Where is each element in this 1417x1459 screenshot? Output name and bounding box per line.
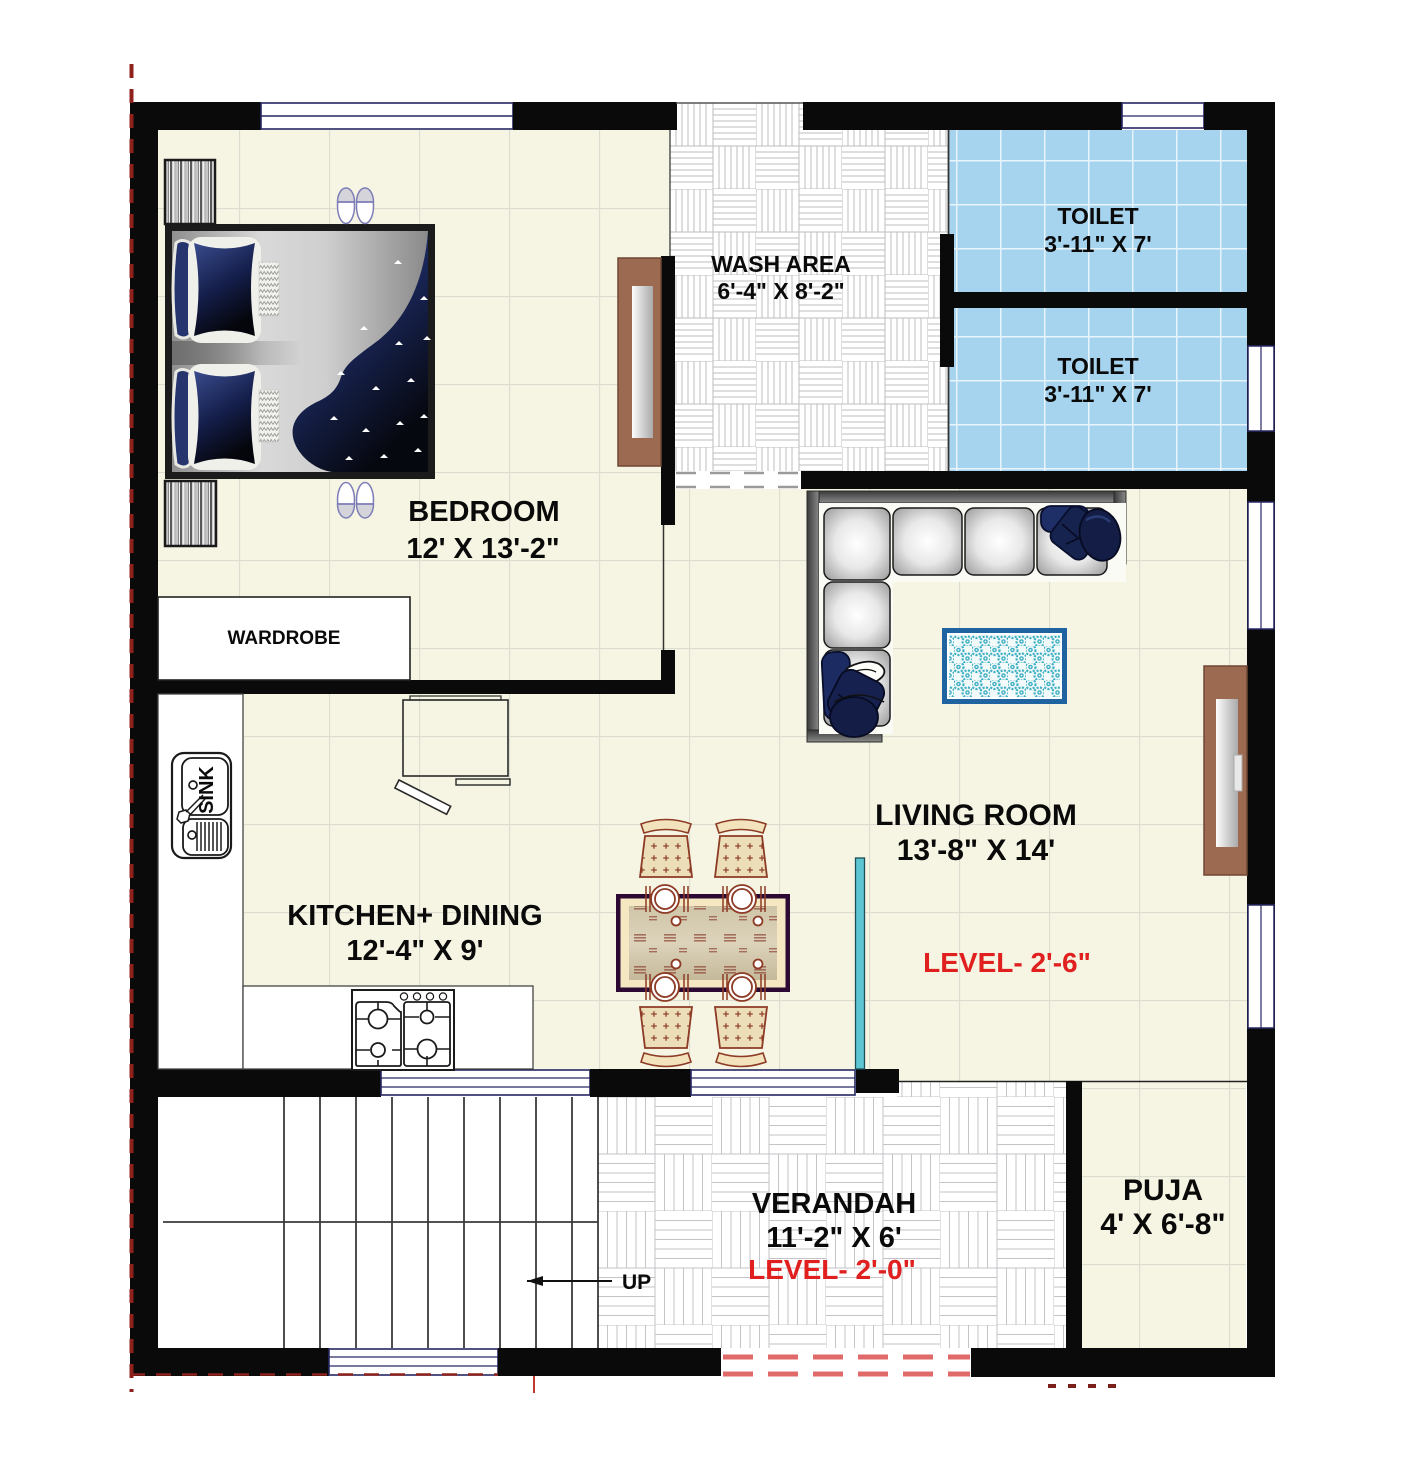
svg-text:6'-4" X 8'-2": 6'-4" X 8'-2" xyxy=(717,278,844,304)
svg-text:11'-2" X 6': 11'-2" X 6' xyxy=(766,1222,902,1254)
svg-text:BEDROOM: BEDROOM xyxy=(408,496,559,528)
svg-text:3'-11" X 7': 3'-11" X 7' xyxy=(1044,381,1152,407)
svg-text:SINK: SINK xyxy=(196,766,218,814)
svg-text:12'-4" X 9': 12'-4" X 9' xyxy=(346,935,483,967)
svg-text:13'-8" X 14': 13'-8" X 14' xyxy=(897,834,1056,867)
svg-text:3'-11" X 7': 3'-11" X 7' xyxy=(1044,231,1152,257)
svg-text:4' X 6'-8": 4' X 6'-8" xyxy=(1100,1208,1225,1241)
svg-text:LEVEL- 2'-6": LEVEL- 2'-6" xyxy=(923,947,1091,978)
svg-text:LIVING ROOM: LIVING ROOM xyxy=(875,799,1077,832)
svg-text:KITCHEN+ DINING: KITCHEN+ DINING xyxy=(287,900,542,932)
svg-text:WASH AREA: WASH AREA xyxy=(711,251,851,277)
svg-text:LEVEL- 2'-0": LEVEL- 2'-0" xyxy=(748,1254,916,1285)
svg-text:TOILET: TOILET xyxy=(1057,353,1138,379)
svg-text:12' X 13'-2": 12' X 13'-2" xyxy=(406,533,559,565)
svg-text:TOILET: TOILET xyxy=(1057,203,1138,229)
svg-text:VERANDAH: VERANDAH xyxy=(752,1188,916,1220)
svg-text:PUJA: PUJA xyxy=(1123,1174,1203,1207)
svg-text:WARDROBE: WARDROBE xyxy=(228,628,341,649)
svg-text:UP: UP xyxy=(622,1271,651,1294)
